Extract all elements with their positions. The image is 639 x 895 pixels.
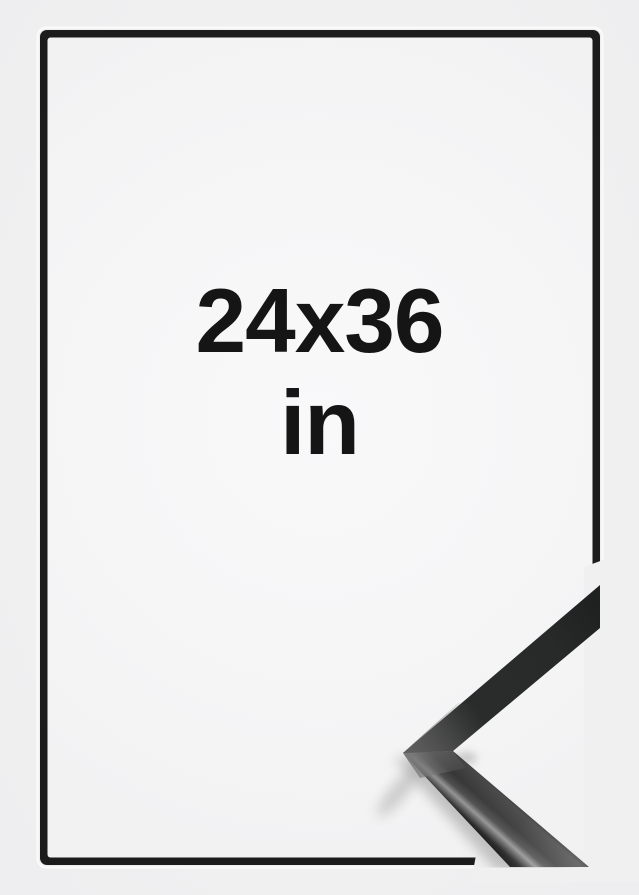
product-image-frame-24x36: 24x36 in [0, 0, 639, 895]
size-label-dimensions: 24x36 [0, 271, 639, 373]
size-label-unit: in [0, 373, 639, 475]
size-label: 24x36 in [0, 271, 639, 475]
